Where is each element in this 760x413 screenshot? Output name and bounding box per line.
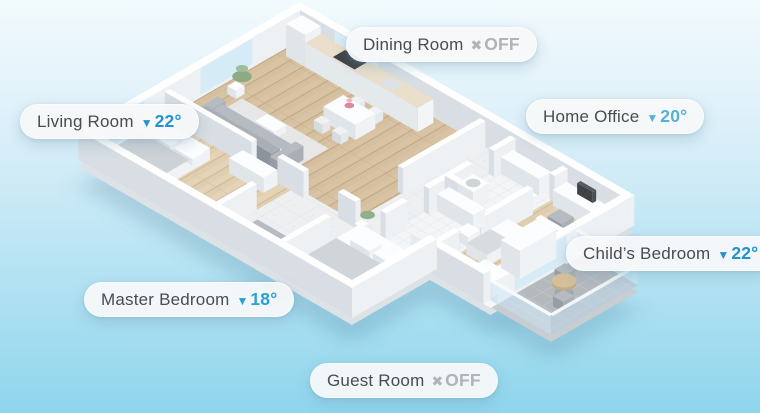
room-name: Living Room bbox=[37, 112, 134, 132]
room-label-master-bedroom[interactable]: Master Bedroom ▼ 18° bbox=[84, 282, 294, 317]
room-label-living-room[interactable]: Living Room ▼ 22° bbox=[20, 104, 199, 139]
room-status-value: OFF bbox=[484, 34, 520, 55]
triangle-down-icon: ▼ bbox=[236, 295, 248, 307]
off-x-icon: ✖ bbox=[470, 38, 482, 52]
room-name: Child’s Bedroom bbox=[583, 244, 710, 264]
room-temperature-value: 18° bbox=[250, 289, 277, 310]
room-label-dining-room[interactable]: Dining Room ✖ OFF bbox=[346, 27, 537, 62]
room-label-guest-room[interactable]: Guest Room ✖ OFF bbox=[310, 363, 498, 398]
smart-home-floorplan-view: Dining Room ✖ OFF Living Room ▼ 22° Home… bbox=[0, 0, 760, 413]
room-label-childs-bedroom[interactable]: Child’s Bedroom ▼ 22° bbox=[566, 236, 760, 271]
triangle-down-icon: ▼ bbox=[646, 112, 658, 124]
triangle-down-icon: ▼ bbox=[717, 249, 729, 261]
room-status-value: OFF bbox=[445, 370, 481, 391]
room-name: Home Office bbox=[543, 107, 639, 127]
room-name: Master Bedroom bbox=[101, 290, 229, 310]
room-temperature-value: 22° bbox=[155, 111, 182, 132]
triangle-down-icon: ▼ bbox=[141, 117, 153, 129]
room-temperature-value: 20° bbox=[660, 106, 687, 127]
room-name: Dining Room bbox=[363, 35, 463, 55]
off-x-icon: ✖ bbox=[431, 374, 443, 388]
room-temperature-value: 22° bbox=[731, 243, 758, 264]
room-name: Guest Room bbox=[327, 371, 424, 391]
room-label-home-office[interactable]: Home Office ▼ 20° bbox=[526, 99, 704, 134]
